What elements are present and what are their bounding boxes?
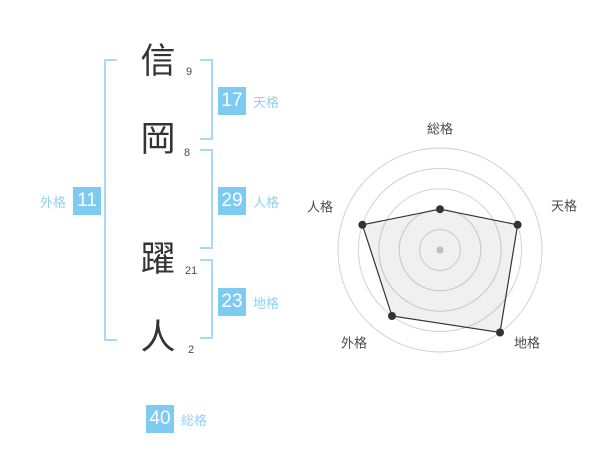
jinkaku-bracket <box>200 149 213 249</box>
name-fortune-page: 信 岡 躍 人 9 8 21 2 17 天格 29 人格 23 地格 外格 11… <box>0 0 600 470</box>
name-character: 躍 <box>140 242 176 278</box>
stroke-count: 2 <box>188 344 194 356</box>
stroke-count: 21 <box>185 265 197 277</box>
tenkaku-value: 17 <box>218 87 246 115</box>
soukaku-value: 40 <box>146 405 174 433</box>
radar-vertex-dot <box>436 205 444 213</box>
stroke-count: 9 <box>186 66 192 78</box>
chikaku-badge: 23 地格 <box>218 288 279 316</box>
stroke-count: 8 <box>184 147 190 159</box>
jinkaku-value: 29 <box>218 187 246 215</box>
name-character: 岡 <box>140 122 176 158</box>
tenkaku-label: 天格 <box>253 92 279 111</box>
jinkaku-badge: 29 人格 <box>218 187 279 215</box>
tenkaku-badge: 17 天格 <box>218 87 279 115</box>
chikaku-label: 地格 <box>253 293 279 312</box>
name-character: 人 <box>140 320 176 356</box>
gaikaku-label: 外格 <box>40 192 66 211</box>
radar-vertex-dot <box>514 221 522 229</box>
radar-center-dot <box>437 247 444 254</box>
radar-label-tenkaku: 天格 <box>551 196 577 215</box>
chikaku-bracket <box>200 259 213 339</box>
radar-vertex-dot <box>388 312 396 320</box>
gaikaku-value: 11 <box>73 187 101 215</box>
gaikaku-badge: 外格 11 <box>40 187 101 215</box>
radar-vertex-dot <box>496 329 504 337</box>
radar-polygon <box>362 209 517 332</box>
radar-label-jinkaku: 人格 <box>307 197 333 216</box>
chikaku-value: 23 <box>218 288 246 316</box>
name-character: 信 <box>140 44 176 80</box>
radar-vertex-dot <box>358 221 366 229</box>
tenkaku-bracket <box>200 59 213 140</box>
radar-label-soukaku: 総格 <box>427 119 453 138</box>
radar-label-chikaku: 地格 <box>514 333 540 352</box>
jinkaku-label: 人格 <box>253 192 279 211</box>
soukaku-badge: 40 総格 <box>146 405 207 433</box>
soukaku-label: 総格 <box>181 410 207 429</box>
radar-label-gaikaku: 外格 <box>341 333 367 352</box>
gaikaku-bracket <box>104 59 117 341</box>
